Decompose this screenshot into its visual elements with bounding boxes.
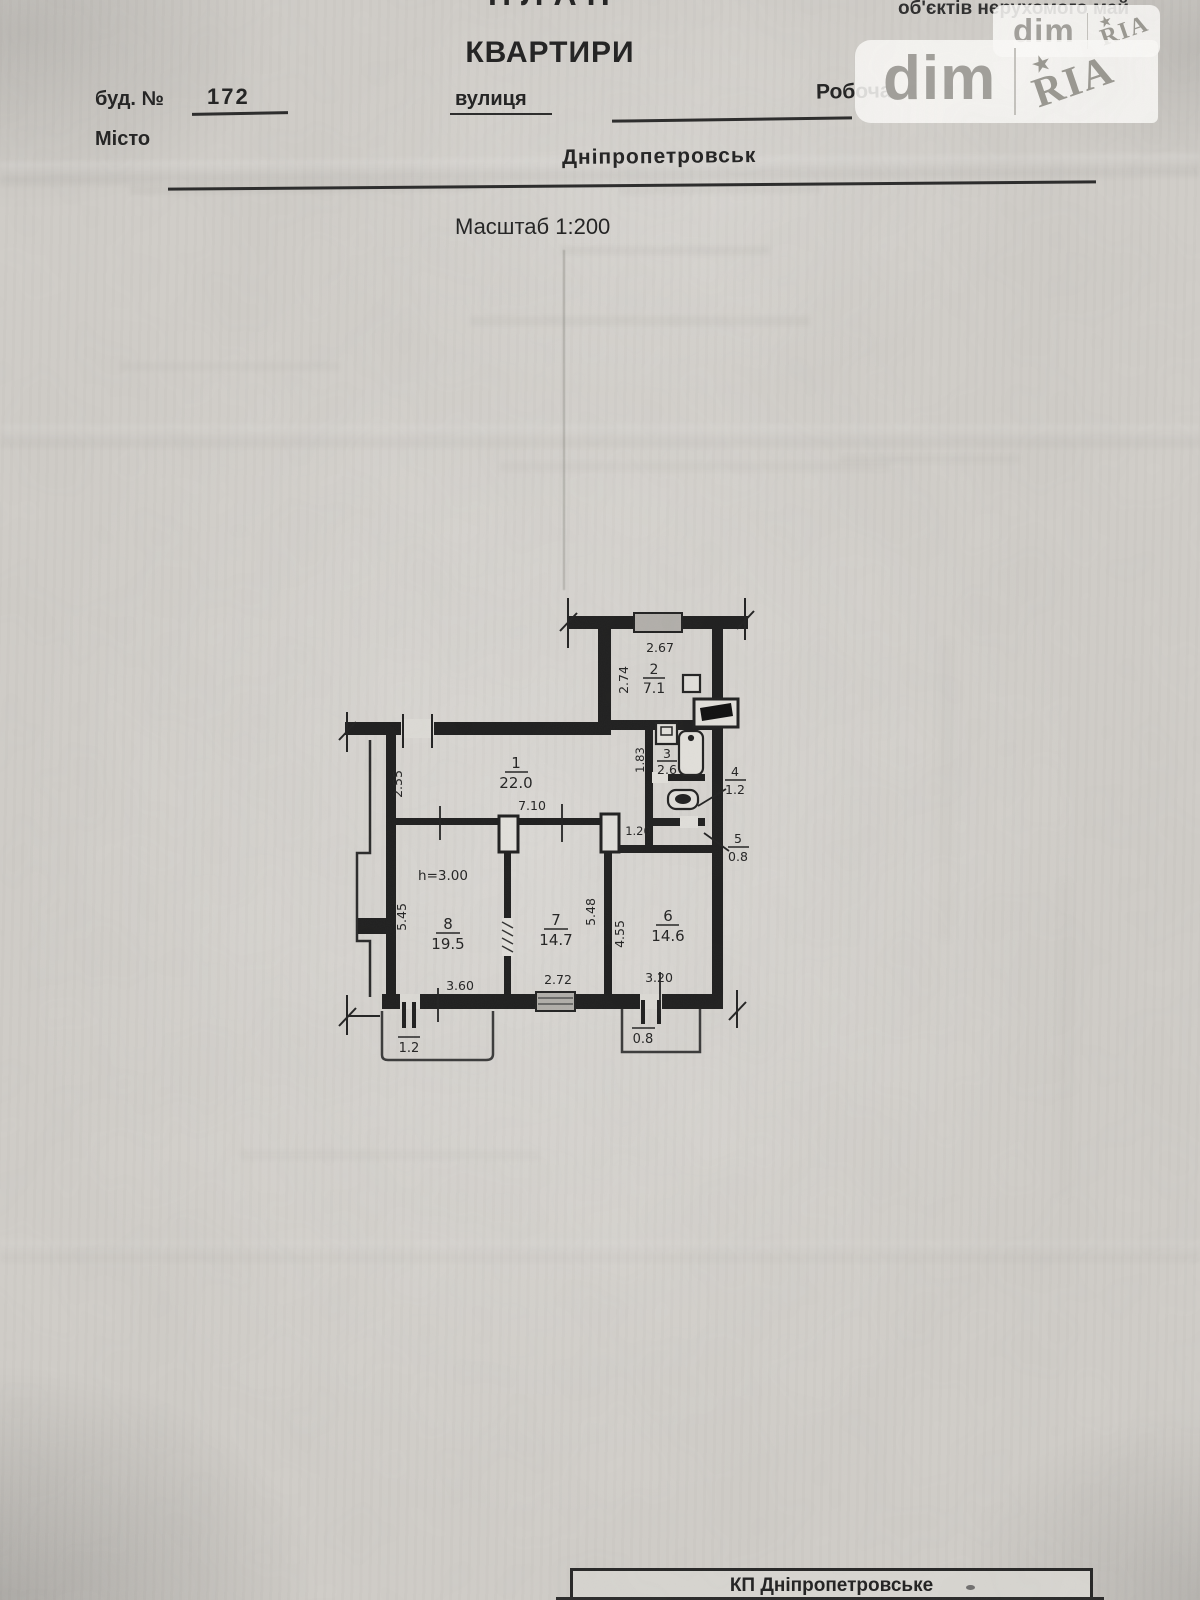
balcony-door-jamb	[402, 1002, 406, 1028]
door-jamb-icon	[601, 814, 619, 852]
dim-logo: dim	[855, 43, 996, 114]
dim-label: 2.72	[544, 972, 572, 987]
wall	[618, 845, 723, 853]
dim-label: 4.55	[612, 920, 627, 948]
wall	[345, 722, 611, 735]
left-facade-contour	[357, 740, 370, 997]
wall	[712, 726, 723, 1000]
dimria-watermark-large: dim RIA★	[855, 40, 1158, 123]
dim-label: 2.67	[646, 640, 674, 655]
scanned-floorplan-page: ПЛАН об'єктів нерухомого май КВАРТИРИ бу…	[0, 0, 1200, 1600]
wall-opening	[401, 719, 434, 738]
dim-label: 5.45	[394, 903, 409, 931]
room-area: 2.6	[657, 762, 677, 777]
room-area: 22.0	[499, 774, 532, 792]
wall-vent-block	[358, 918, 388, 934]
room-number: 7	[551, 911, 561, 929]
dim-label: 5.48	[583, 898, 598, 926]
bathtub-tap	[689, 736, 693, 740]
room-area: 19.5	[431, 935, 464, 953]
dim-label: 2.74	[616, 666, 631, 694]
dim-label: 3.20	[645, 970, 673, 985]
footer-stamp-box: КП Дніпропетровське	[570, 1568, 1093, 1600]
balcony-door-jamb	[641, 1000, 645, 1024]
window-icon	[536, 992, 575, 1011]
footer-text: КП Дніпропетровське	[730, 1575, 933, 1596]
ria-logo: RIA★	[1027, 45, 1121, 117]
wall	[598, 616, 611, 730]
room-number: 8	[443, 915, 453, 933]
dim-label: 1.20	[625, 824, 651, 838]
room-number: 5	[734, 831, 742, 846]
room-number: 6	[663, 907, 673, 925]
dim-label: 3.60	[446, 978, 474, 993]
floorplan-drawing: 1 22.0 2 7.1 3 2.6 4 1.2 5 0.8 6 14.6 7 …	[0, 0, 1200, 1600]
dim-label: 2.55	[390, 770, 405, 798]
sink-icon	[683, 675, 700, 692]
dim-label: 7.10	[518, 798, 546, 813]
room-number: 2	[650, 662, 659, 678]
toilet-bowl	[675, 794, 691, 804]
dim-label: 1.83	[633, 747, 647, 773]
balcony-area: 1.2	[399, 1041, 420, 1056]
ink-speck	[966, 1585, 975, 1590]
balcony-area: 0.8	[633, 1032, 654, 1047]
room-area: 7.1	[643, 681, 665, 697]
watermark-divider	[1014, 48, 1016, 115]
door-opening	[680, 816, 698, 828]
room-area: 14.7	[539, 931, 572, 949]
washbasin-icon	[656, 723, 677, 744]
window-icon	[634, 613, 682, 632]
room-number: 4	[731, 764, 739, 779]
ceiling-height-note: h=3.00	[418, 868, 468, 884]
room-area: 14.6	[651, 927, 684, 945]
door-jamb-icon	[499, 816, 518, 852]
room-area: 0.8	[728, 849, 748, 864]
room-area: 1.2	[725, 782, 745, 797]
room-number: 1	[511, 754, 521, 772]
balcony-door-jamb	[412, 1002, 416, 1028]
room-number: 3	[663, 746, 671, 761]
